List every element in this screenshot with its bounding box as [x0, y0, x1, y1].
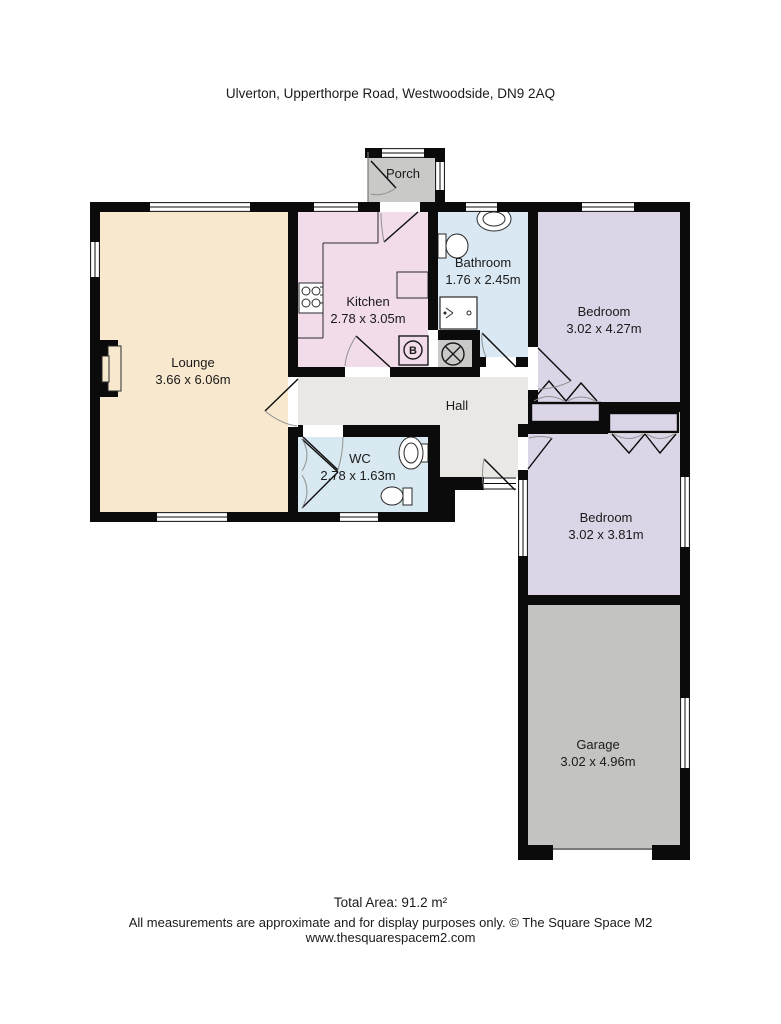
garage-label: Garage — [576, 737, 619, 752]
window — [466, 202, 497, 212]
glazed-back-door — [484, 477, 516, 490]
window — [680, 698, 690, 768]
boiler-icon: B — [399, 336, 428, 365]
kitchen-label: Kitchen — [346, 294, 389, 309]
bedroom2-label: Bedroom — [580, 510, 633, 525]
wc-toilet-icon — [381, 487, 412, 505]
lounge-label: Lounge — [171, 355, 214, 370]
website-text: www.thesquarespacem2.com — [0, 930, 781, 945]
window — [150, 202, 250, 212]
window — [518, 480, 528, 556]
total-area-text: Total Area: 91.2 m² — [0, 895, 781, 910]
bedroom1-wardrobe — [531, 403, 600, 422]
floorplan-page: Ulverton, Upperthorpe Road, Westwoodside… — [0, 0, 781, 1024]
window — [680, 477, 690, 547]
wc-label: WC — [349, 451, 371, 466]
window — [382, 148, 424, 158]
svg-text:B: B — [409, 345, 417, 357]
disclaimer-text: All measurements are approximate and for… — [0, 915, 781, 930]
cylinder-icon — [442, 343, 464, 365]
porch-label: Porch — [386, 166, 420, 181]
window — [157, 512, 227, 522]
bathroom-label: Bathroom — [455, 255, 511, 270]
bedroom2-wardrobe — [609, 413, 678, 432]
window — [435, 162, 445, 190]
bedroom2-dims: 3.02 x 3.81m — [568, 527, 643, 542]
bedroom1-dims: 3.02 x 4.27m — [566, 321, 641, 336]
bathroom-dims: 1.76 x 2.45m — [445, 272, 520, 287]
garage-dims: 3.02 x 4.96m — [560, 754, 635, 769]
bedroom1-label: Bedroom — [578, 304, 631, 319]
window — [90, 242, 100, 277]
window — [340, 512, 378, 522]
hob-icon — [299, 283, 323, 313]
wc-dims: 2.78 x 1.63m — [320, 468, 395, 483]
window — [582, 202, 634, 212]
shower-icon — [440, 297, 477, 329]
lounge-dims: 3.66 x 6.06m — [155, 372, 230, 387]
window — [314, 202, 358, 212]
fireplace-icon — [100, 340, 121, 397]
garage-floor — [528, 605, 680, 848]
hall-label: Hall — [446, 398, 469, 413]
kitchen-dims: 2.78 x 3.05m — [330, 311, 405, 326]
floorplan-drawing: B — [0, 0, 781, 1024]
